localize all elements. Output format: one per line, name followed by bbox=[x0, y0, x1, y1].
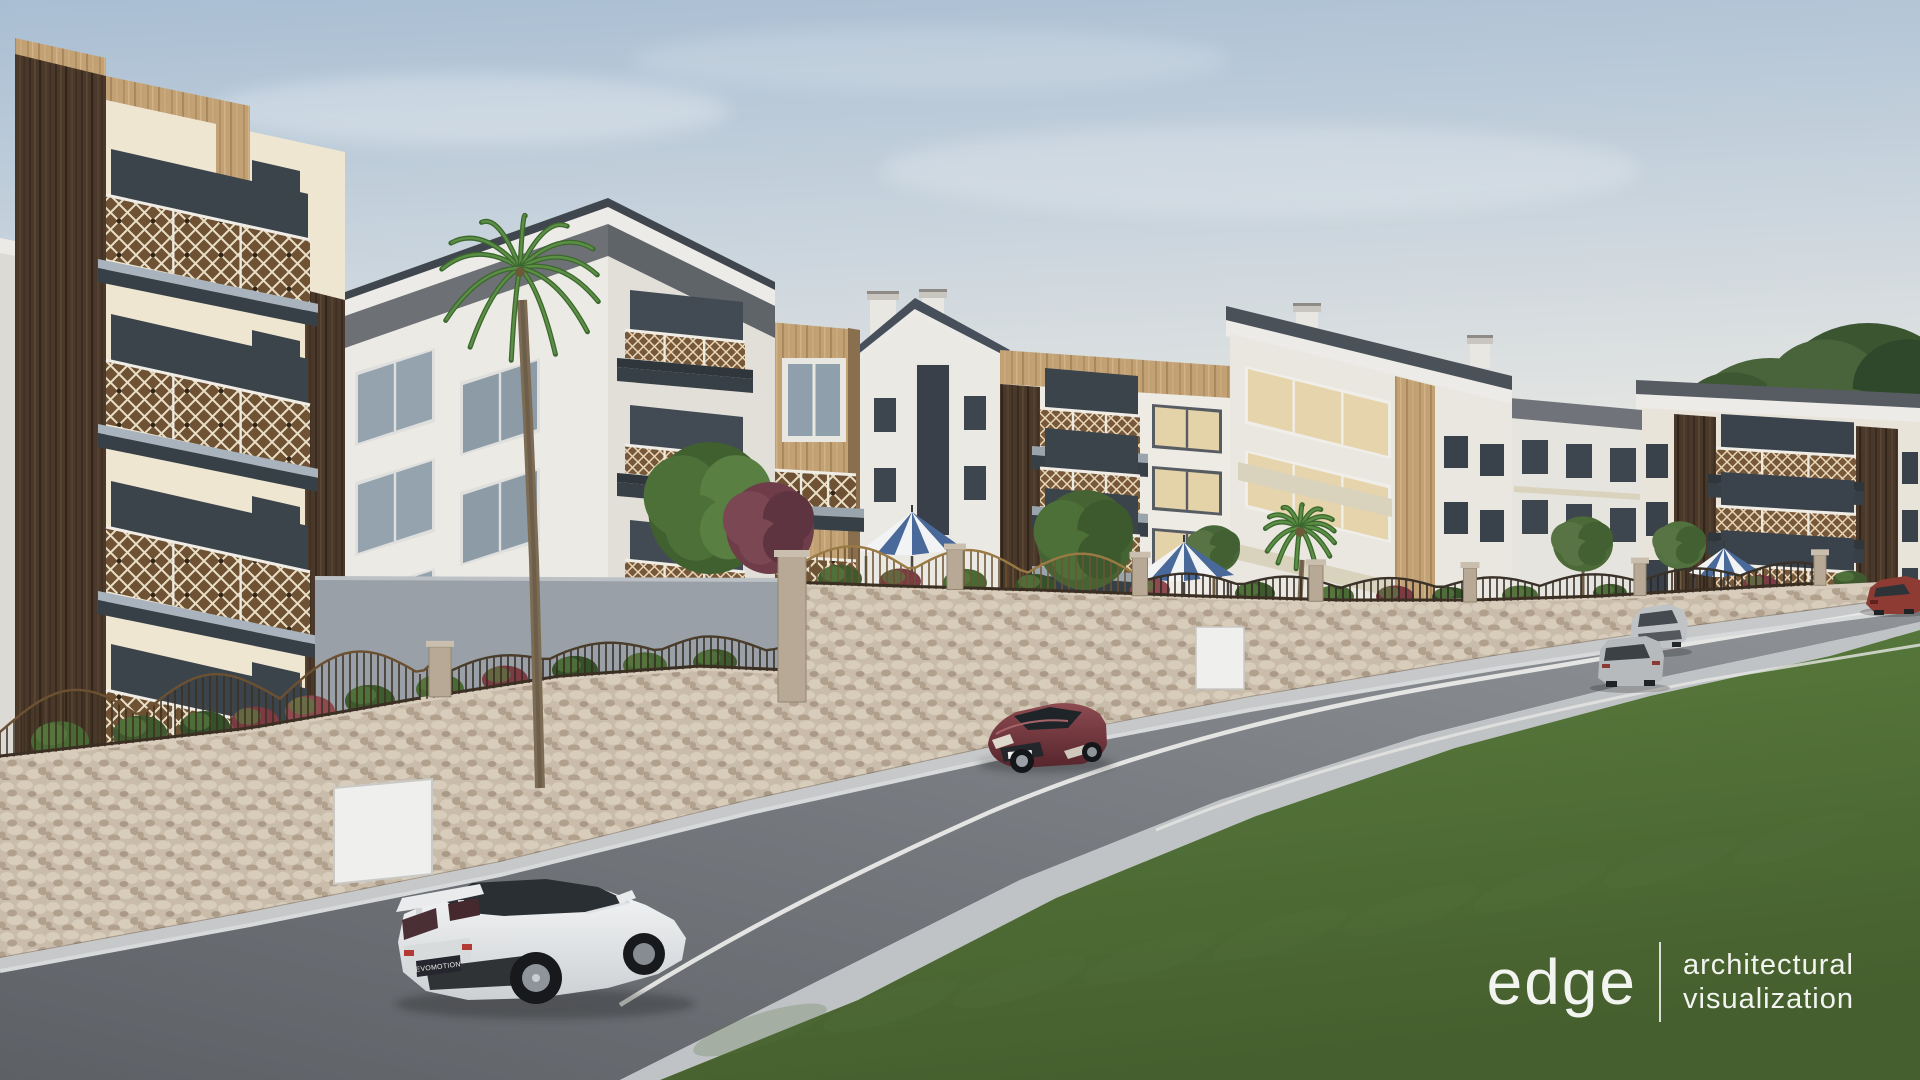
architectural-render: EVOMOTION edge architectural visualizati… bbox=[0, 0, 1920, 1080]
watermark: edge architectural visualization bbox=[1487, 942, 1854, 1022]
scene-canvas: EVOMOTION bbox=[0, 0, 1920, 1080]
watermark-divider bbox=[1659, 942, 1661, 1022]
watermark-brand: edge bbox=[1487, 950, 1637, 1014]
watermark-tagline: architectural visualization bbox=[1683, 948, 1854, 1016]
